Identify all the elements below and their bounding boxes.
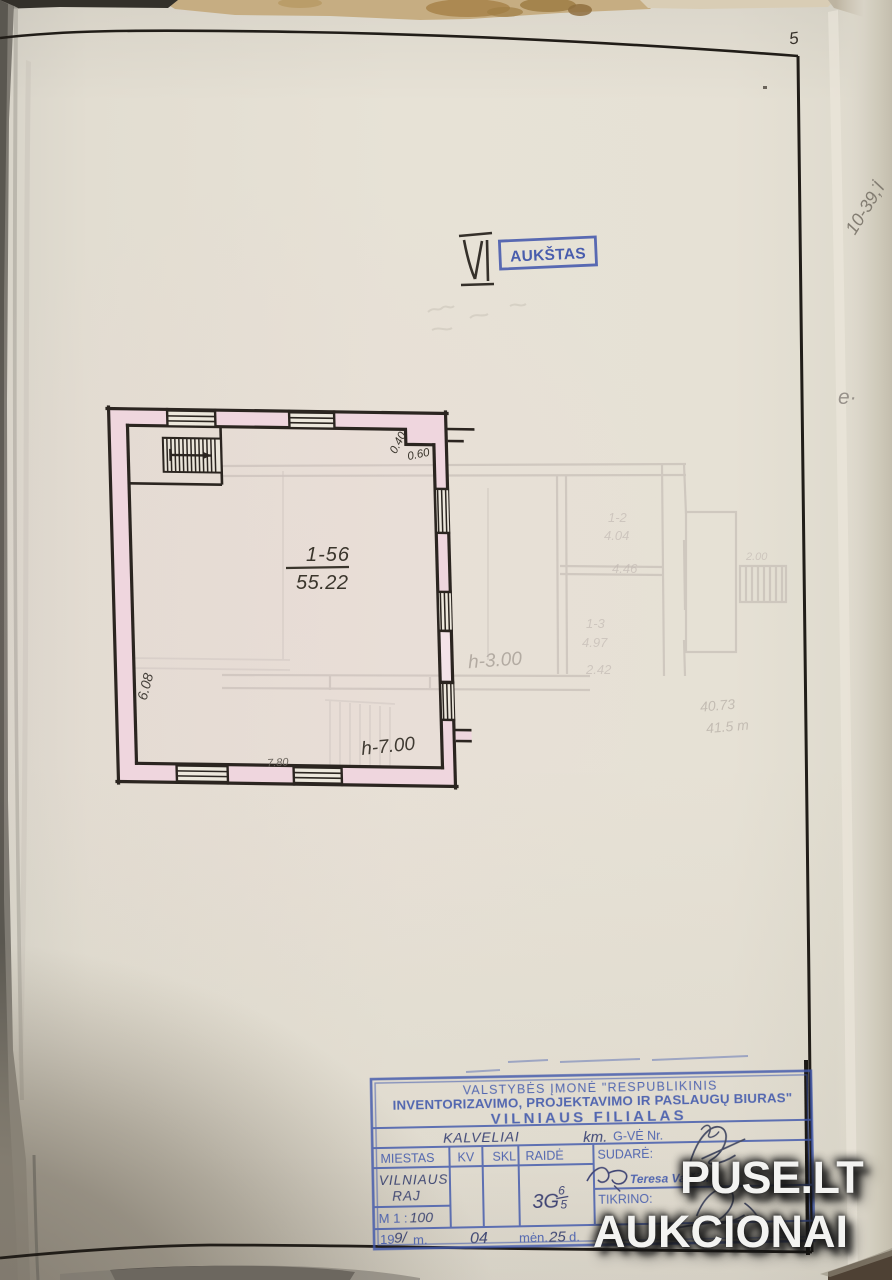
svg-text:5: 5 <box>560 1197 567 1211</box>
svg-text:40.73: 40.73 <box>699 696 736 715</box>
svg-text:55.22: 55.22 <box>296 572 349 594</box>
svg-text:km.: km. <box>583 1129 607 1146</box>
svg-text:MIESTAS: MIESTAS <box>380 1151 434 1166</box>
svg-text:25: 25 <box>548 1228 567 1245</box>
svg-text:2.00: 2.00 <box>745 551 768 563</box>
svg-text:2.42: 2.42 <box>585 662 612 677</box>
svg-text:AUKŠTAS: AUKŠTAS <box>510 244 587 265</box>
svg-text:RAJ: RAJ <box>392 1188 421 1204</box>
svg-text:1-2: 1-2 <box>608 510 628 525</box>
svg-text:7.80: 7.80 <box>267 756 290 769</box>
svg-text:e·: e· <box>838 386 857 409</box>
svg-text:TIKRINO:: TIKRINO: <box>598 1192 652 1207</box>
svg-text:19: 19 <box>380 1232 395 1247</box>
svg-text:h-3.00: h-3.00 <box>467 648 523 673</box>
svg-text:M 1 :: M 1 : <box>379 1210 408 1226</box>
svg-text:100: 100 <box>409 1209 433 1225</box>
svg-text:KV: KV <box>457 1150 475 1164</box>
svg-text:mėn.: mėn. <box>519 1230 548 1246</box>
svg-text:4.97: 4.97 <box>582 635 608 650</box>
svg-text:KALVELIAI: KALVELIAI <box>443 1128 520 1145</box>
svg-text:04: 04 <box>470 1230 488 1247</box>
svg-text:9/: 9/ <box>394 1229 409 1246</box>
svg-text:d.: d. <box>569 1229 580 1244</box>
svg-text:SUDARĖ:: SUDARĖ: <box>597 1147 653 1162</box>
svg-text:6: 6 <box>558 1183 565 1197</box>
svg-text:SKL: SKL <box>492 1149 516 1163</box>
svg-text:4.46: 4.46 <box>612 561 638 576</box>
svg-text:1-3: 1-3 <box>586 616 606 631</box>
svg-text:4.04: 4.04 <box>604 528 629 543</box>
svg-text:1-56: 1-56 <box>306 544 350 566</box>
svg-text:3G: 3G <box>532 1191 559 1214</box>
svg-text:VILNIAUS: VILNIAUS <box>379 1172 449 1188</box>
svg-text:m.: m. <box>413 1232 428 1247</box>
svg-text:G-VĖ Nr.: G-VĖ Nr. <box>613 1129 663 1144</box>
svg-text:RAIDĖ: RAIDĖ <box>525 1148 563 1163</box>
